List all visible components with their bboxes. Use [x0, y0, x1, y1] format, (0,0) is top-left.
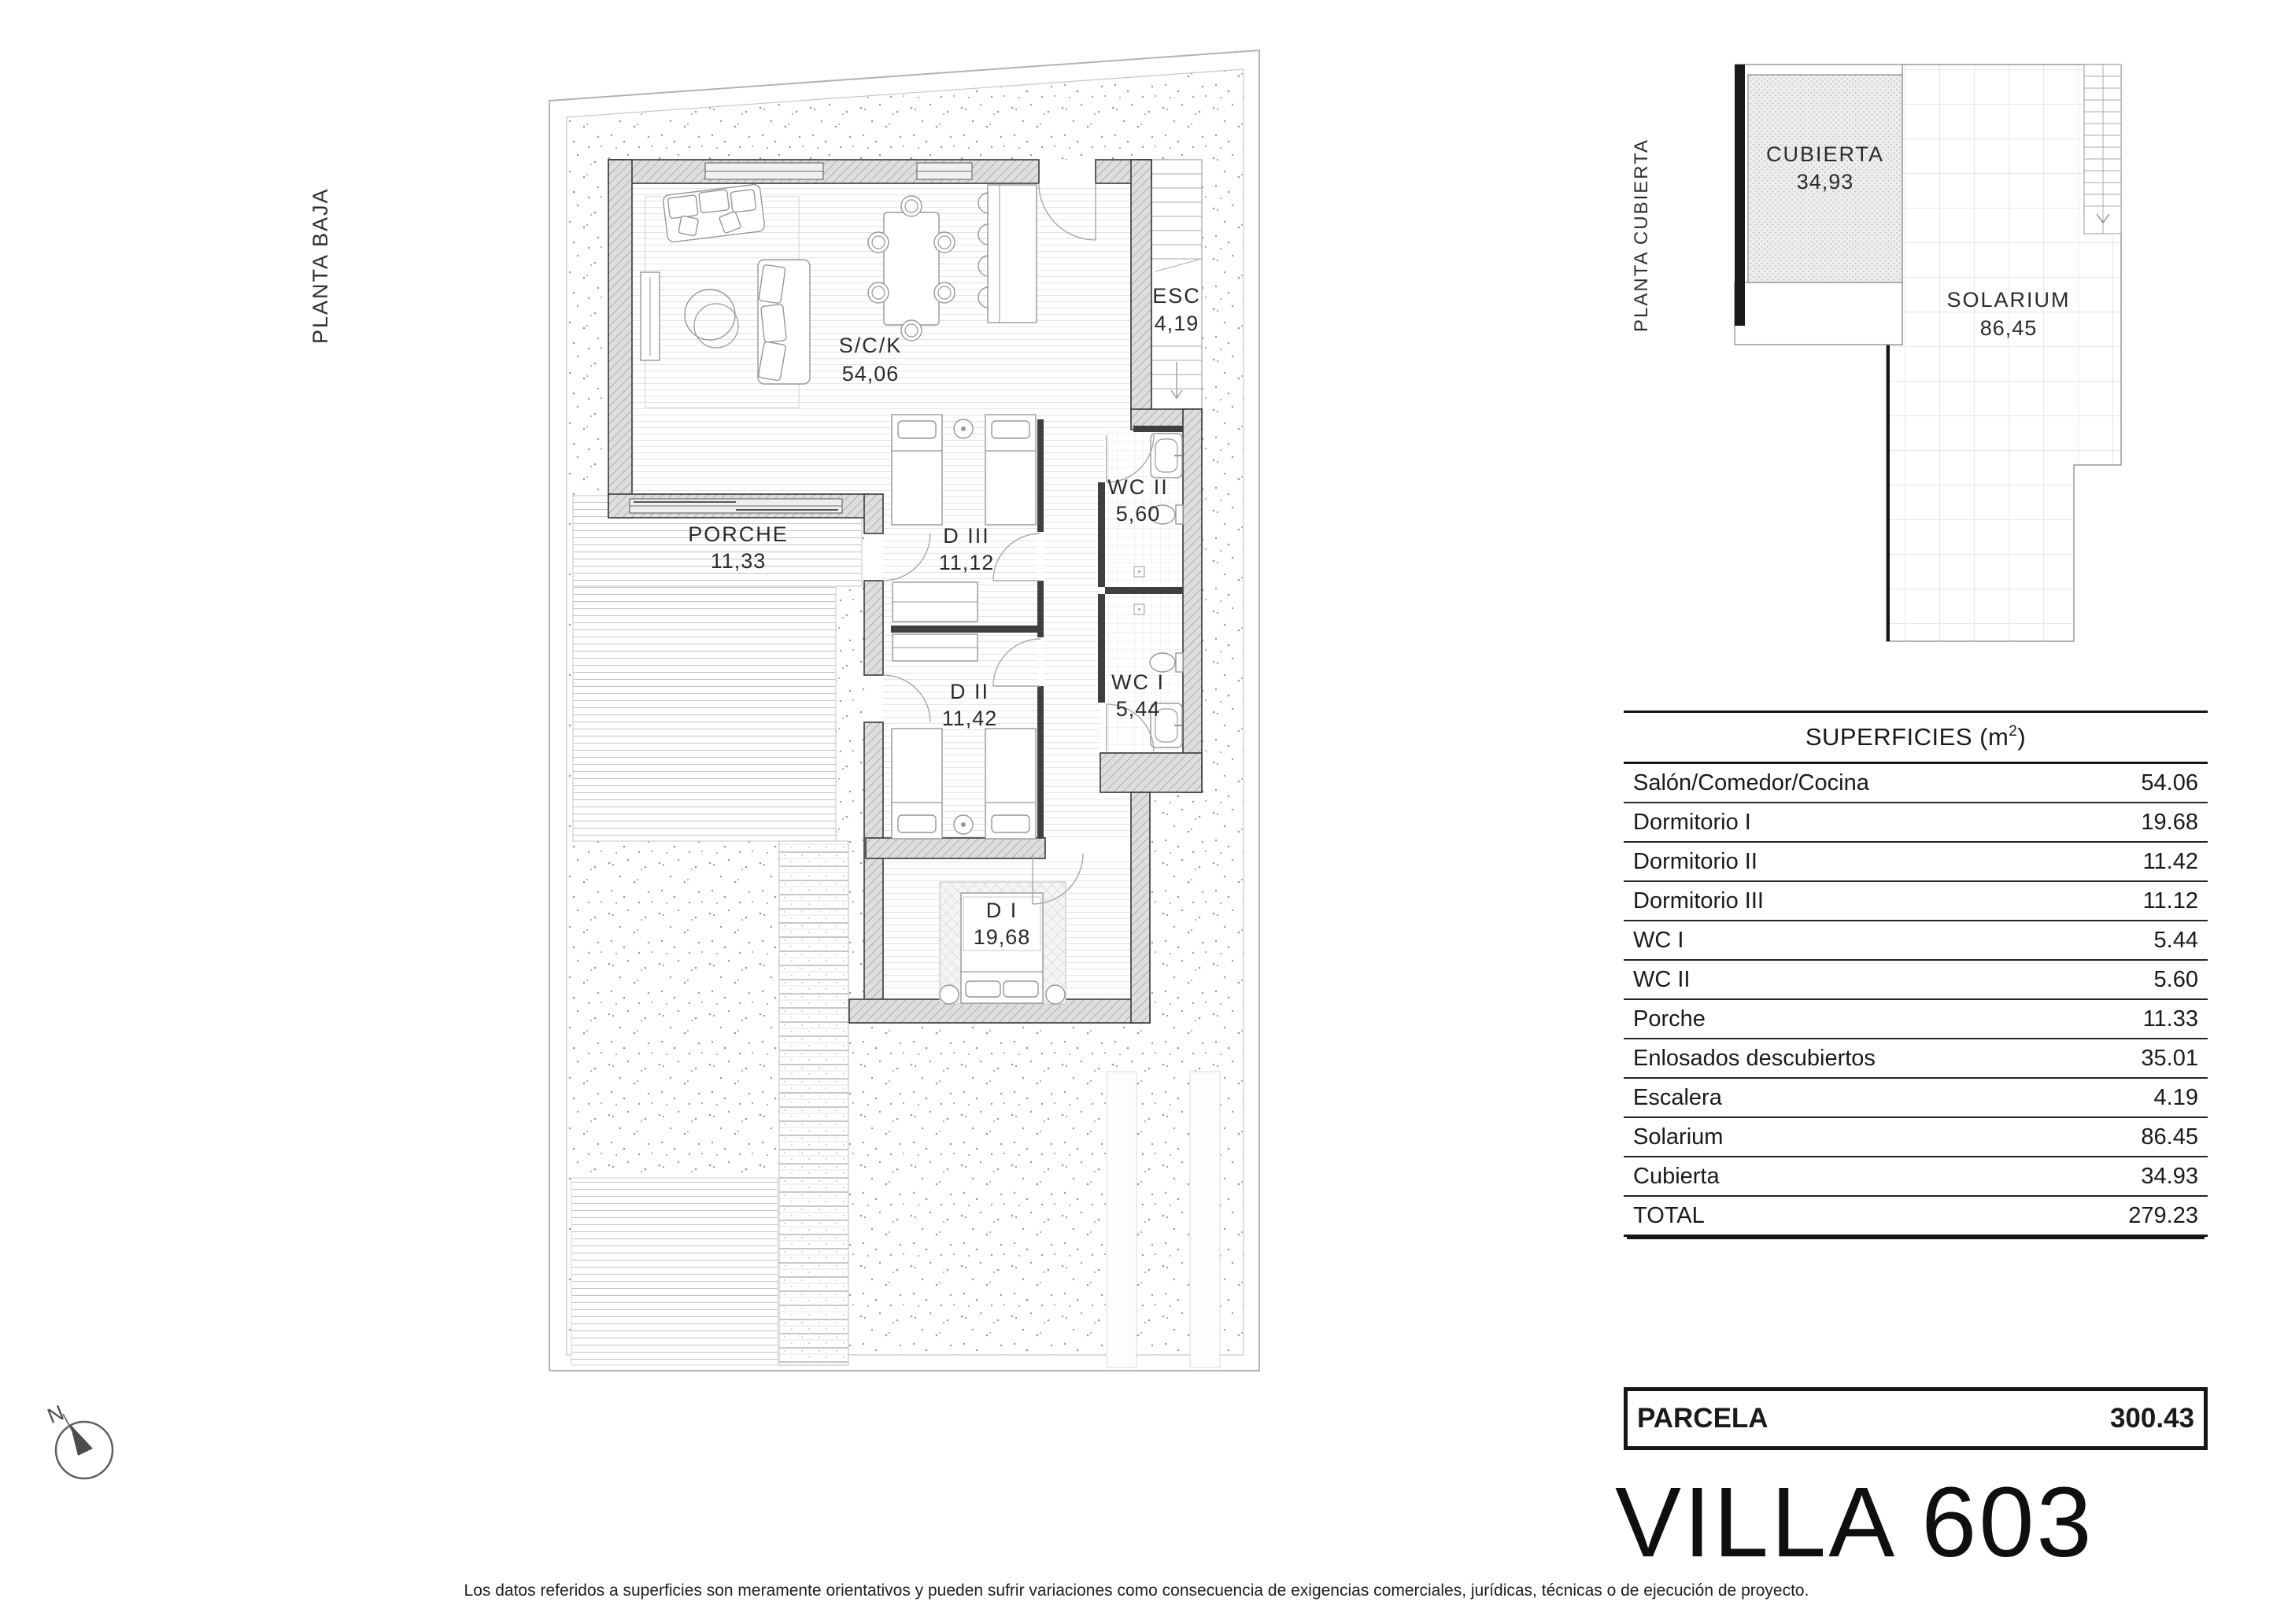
- room-label-sck: S/C/K: [839, 334, 903, 357]
- dining-chair: [868, 232, 889, 253]
- table-row: Porche11.33: [1624, 998, 2208, 1038]
- table-row: Cubierta34.93: [1624, 1156, 2208, 1195]
- table-row: Dormitorio III11.12: [1624, 880, 2208, 920]
- closet: [893, 582, 978, 622]
- window: [705, 163, 823, 179]
- table-row: Escalera4.19: [1624, 1077, 2208, 1116]
- row-value: 35.01: [2141, 1046, 2198, 1072]
- room-label-solarium: SOLARIUM: [1946, 288, 2070, 312]
- parcela-label: PARCELA: [1637, 1403, 1769, 1434]
- table-title-close: ): [2017, 723, 2026, 751]
- floor-plan-sheet: S/C/K 54,06 ESC 4,19 PORCHE 11,33 D III …: [0, 0, 2273, 1624]
- table-title: SUPERFICIES (m: [1805, 723, 2009, 751]
- row-label: Dormitorio II: [1633, 849, 1757, 875]
- row-label: WC II: [1633, 967, 1691, 993]
- north-label: N: [44, 1401, 67, 1428]
- row-value: 11.42: [2143, 849, 2198, 875]
- single-bed: [985, 415, 1036, 525]
- garden-walkway: [779, 841, 848, 1365]
- dining-chair: [901, 196, 922, 216]
- room-label-porche: PORCHE: [688, 522, 789, 546]
- table-title-sup: 2: [2009, 723, 2017, 740]
- room-area-wc1: 5,44: [1116, 697, 1161, 721]
- garden-path: [1190, 1072, 1220, 1367]
- table-row: WC II5.60: [1624, 959, 2208, 998]
- row-value: 86.45: [2141, 1124, 2198, 1150]
- roof-wall-bar: [1735, 65, 1745, 326]
- window: [917, 163, 972, 179]
- single-bed: [892, 415, 942, 525]
- surfaces-table: SUPERFICIES (m2) Salón/Comedor/Cocina54.…: [1624, 710, 2208, 1237]
- row-label: Enlosados descubiertos: [1633, 1046, 1876, 1072]
- sink: [1151, 434, 1182, 478]
- table-row: WC I5.44: [1624, 920, 2208, 959]
- row-value: 54.06: [2141, 770, 2198, 796]
- row-label: TOTAL: [1633, 1203, 1705, 1229]
- ground-floor-plan: S/C/K 54,06 ESC 4,19 PORCHE 11,33 D III …: [549, 50, 1259, 1371]
- nightstand: [940, 985, 959, 1004]
- room-area-sck: 54,06: [842, 362, 900, 386]
- room-area-esc: 4,19: [1155, 312, 1199, 335]
- garden-path: [1107, 1072, 1136, 1367]
- table-row: Salón/Comedor/Cocina54.06: [1624, 764, 2208, 802]
- roof-plan: CUBIERTA 34,93 SOLARIUM 86,45: [1735, 65, 2121, 641]
- row-label: Dormitorio I: [1633, 810, 1751, 836]
- row-value: 5.60: [2154, 967, 2198, 993]
- disclaimer-text: Los datos referidos a superficies son me…: [0, 1582, 2273, 1600]
- room-label-cubierta: CUBIERTA: [1766, 142, 1884, 166]
- row-value: 11.33: [2143, 1006, 2198, 1032]
- dining-chair: [934, 282, 955, 303]
- row-label: WC I: [1633, 928, 1683, 954]
- ground-floor-title: PLANTA BAJA: [309, 198, 333, 344]
- row-value: 4.19: [2154, 1085, 2198, 1111]
- row-value: 5.44: [2154, 928, 2198, 954]
- compass: N: [44, 1401, 113, 1478]
- surfaces-table-header: SUPERFICIES (m2): [1624, 713, 2208, 764]
- room-label-wc1: WC I: [1111, 670, 1165, 694]
- kitchen-counter: [988, 185, 1037, 323]
- row-value: 11.12: [2143, 888, 2198, 914]
- table-row: Enlosados descubiertos35.01: [1624, 1038, 2208, 1077]
- row-value: 19.68: [2141, 810, 2198, 836]
- parcela-box: PARCELA 300.43: [1624, 1387, 2208, 1450]
- sofa: [758, 260, 810, 384]
- roof-staircase: [2084, 65, 2121, 234]
- room-area-porche: 11,33: [711, 549, 767, 573]
- room-label-d1: D I: [986, 899, 1018, 922]
- toilet: [1150, 653, 1183, 672]
- dining-chair: [901, 320, 922, 341]
- row-label: Salón/Comedor/Cocina: [1633, 770, 1869, 796]
- room-area-d1: 19,68: [974, 925, 1031, 949]
- row-label: Cubierta: [1633, 1164, 1720, 1190]
- north-needle: [70, 1424, 93, 1456]
- table-row: Dormitorio II11.42: [1624, 841, 2208, 880]
- roof-plan-title: PLANTA CUBIERTA: [1631, 175, 1653, 332]
- closet: [893, 634, 978, 661]
- table-row-total: TOTAL279.23: [1624, 1195, 2208, 1235]
- nightstand: [1046, 985, 1065, 1004]
- single-bed: [985, 729, 1036, 839]
- sliding-door: [630, 499, 842, 513]
- room-label-d3: D III: [943, 524, 990, 548]
- room-label-esc: ESC: [1152, 284, 1201, 308]
- room-label-d2: D II: [950, 680, 989, 703]
- row-value: 279.23: [2128, 1203, 2198, 1229]
- room-area-d3: 11,12: [939, 551, 995, 574]
- room-area-solarium: 86,45: [1980, 316, 2038, 340]
- room-area-cubierta: 34,93: [1797, 170, 1854, 194]
- room-area-wc2: 5,60: [1116, 502, 1161, 526]
- table-row: Dormitorio I19.68: [1624, 802, 2208, 841]
- row-label: Porche: [1633, 1006, 1706, 1032]
- row-label: Escalera: [1633, 1085, 1722, 1111]
- parcela-value: 300.43: [2110, 1403, 2194, 1434]
- single-bed: [892, 729, 942, 839]
- sideboard: [641, 272, 660, 360]
- row-label: Dormitorio III: [1633, 888, 1764, 914]
- villa-title: VILLA 603: [1615, 1465, 2218, 1579]
- table-row: Solarium86.45: [1624, 1116, 2208, 1156]
- room-label-wc2: WC II: [1107, 475, 1169, 499]
- row-value: 34.93: [2141, 1164, 2198, 1190]
- room-area-d2: 11,42: [942, 707, 998, 730]
- dining-chair: [934, 232, 955, 253]
- row-label: Solarium: [1633, 1124, 1723, 1150]
- dining-chair: [868, 282, 889, 303]
